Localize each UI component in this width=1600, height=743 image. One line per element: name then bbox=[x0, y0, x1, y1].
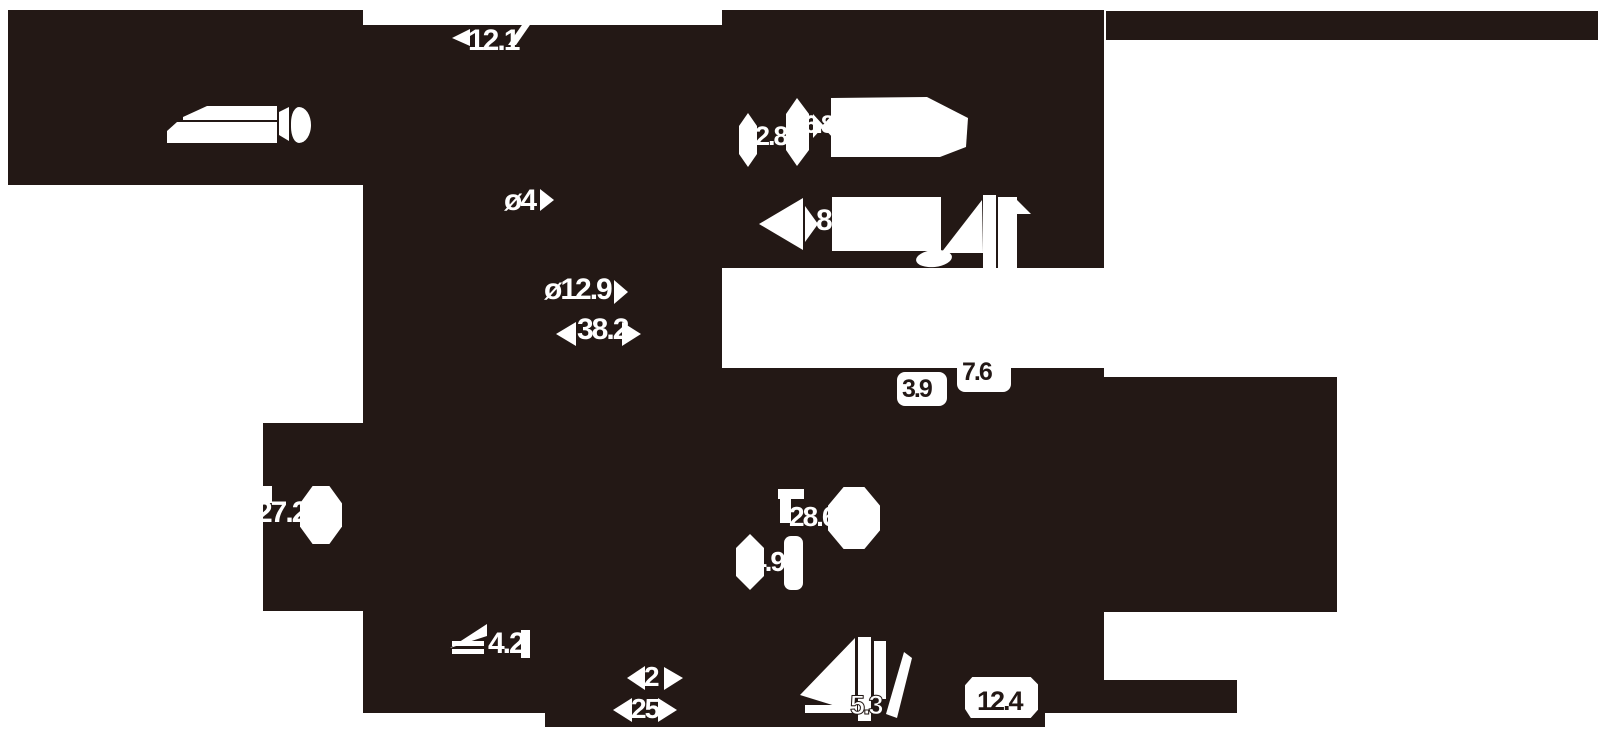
dim-12-4-label: 12.4 bbox=[977, 688, 1022, 715]
dim-4-9-label: 4.9 bbox=[751, 548, 784, 576]
dim-7-6-label: 7.6 bbox=[962, 360, 991, 385]
dim-27-2-label: 27.2 bbox=[256, 498, 306, 528]
top-right-bar bbox=[1106, 11, 1598, 40]
panel-top-left bbox=[8, 10, 363, 185]
plug-column-b bbox=[998, 197, 1017, 277]
dim-4-9-arrow-bar bbox=[784, 536, 803, 590]
dim-4-2-label: 4.2 bbox=[488, 629, 524, 659]
dim-38-2-label: 38.2 bbox=[577, 315, 627, 345]
dim-4-2-line-b bbox=[452, 649, 484, 654]
dim-4-2-end-bar bbox=[521, 630, 530, 658]
panel-bottom-right-ext bbox=[1104, 680, 1237, 713]
panel-mid-column bbox=[363, 25, 722, 423]
plug-column-a bbox=[983, 195, 996, 273]
panel-right bbox=[1104, 377, 1337, 612]
dim-2-8-label: 2.8 bbox=[755, 123, 787, 150]
dim-8-label: 8 bbox=[816, 206, 831, 236]
earbud-body bbox=[167, 122, 277, 143]
dim-2-label: 2 bbox=[644, 663, 658, 691]
dim-3-9-label: 3.9 bbox=[902, 377, 931, 402]
earbud-nozzle-wedge bbox=[279, 107, 289, 141]
dim-phi12-9-label: ø12.9 bbox=[544, 275, 611, 305]
dim-25-label: 25 bbox=[631, 695, 658, 723]
dim-4-2-line-a bbox=[452, 641, 484, 646]
dimension-diagram-canvas: 12.1 ø4 ø12.9 38.2 2.8 6.8 8 3.9 7.6 27.… bbox=[0, 0, 1600, 743]
dim-5-3-label: 5.3 bbox=[850, 692, 882, 719]
dim-phi4-label: ø4 bbox=[504, 186, 535, 216]
housing-body-front-view bbox=[832, 197, 941, 251]
